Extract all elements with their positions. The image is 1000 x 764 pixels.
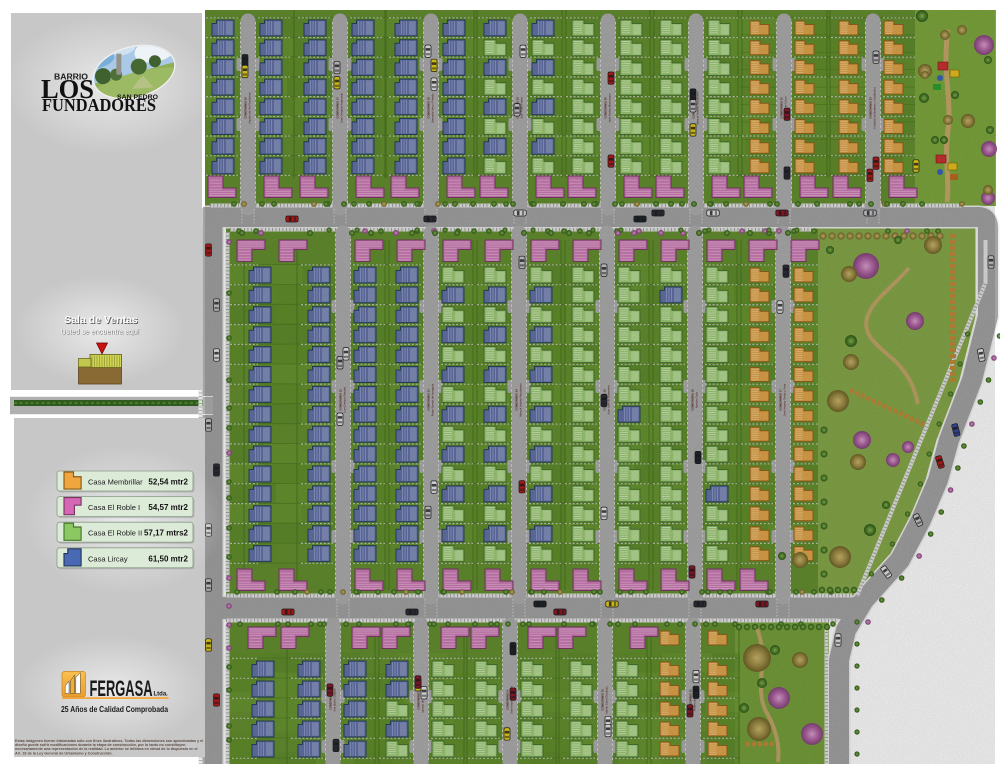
- svg-text:54,57 mtr2: 54,57 mtr2: [148, 503, 188, 512]
- svg-text:Casa Lircay: Casa Lircay: [88, 554, 128, 563]
- svg-text:FUNDADORES: FUNDADORES: [42, 95, 156, 115]
- svg-text:Usted se encuentra aquí: Usted se encuentra aquí: [61, 327, 139, 336]
- svg-text:Casa El Roble I: Casa El Roble I: [88, 503, 140, 512]
- svg-text:Casa Membrillar: Casa Membrillar: [88, 478, 143, 487]
- svg-text:52,54 mtr2: 52,54 mtr2: [148, 478, 188, 487]
- svg-text:FERGASA: FERGASA: [90, 676, 153, 701]
- svg-text:57,17 mtrs2: 57,17 mtrs2: [144, 529, 189, 538]
- svg-text:25 Años de Calidad Comprobada: 25 Años de Calidad Comprobada: [61, 704, 168, 714]
- svg-text:Ltda.: Ltda.: [154, 692, 169, 698]
- svg-text:Casa El Roble II: Casa El Roble II: [88, 529, 142, 538]
- svg-text:Sala de Ventas: Sala de Ventas: [64, 314, 138, 326]
- svg-text:61,50 mtr2: 61,50 mtr2: [148, 554, 188, 563]
- svg-text:Art. 18 de la Ley General de U: Art. 18 de la Ley General de Urbanismo y…: [15, 751, 113, 755]
